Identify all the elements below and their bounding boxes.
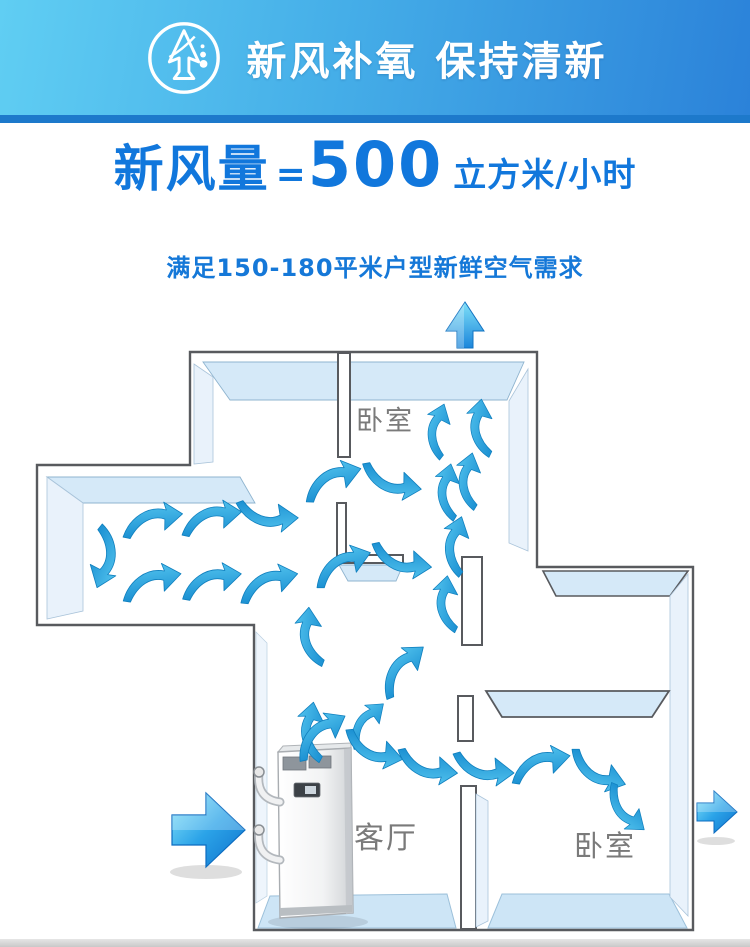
room-label-living-room: 客厅: [354, 824, 418, 854]
room-label-bedroom-right: 卧室: [574, 832, 636, 861]
right-exhaust-arrow: [697, 791, 737, 845]
page-bottom-divider: [0, 939, 750, 947]
fresh-air-infographic: 新风补氧 保持清新 新风量 = 500 立方米/小时 满足150-180平米户型…: [0, 0, 750, 947]
top-exhaust-arrow: [446, 302, 484, 348]
room-label-bedroom-top: 卧室: [356, 408, 414, 435]
floorplan-diagram: [0, 0, 750, 947]
left-intake-arrow: [170, 793, 245, 879]
